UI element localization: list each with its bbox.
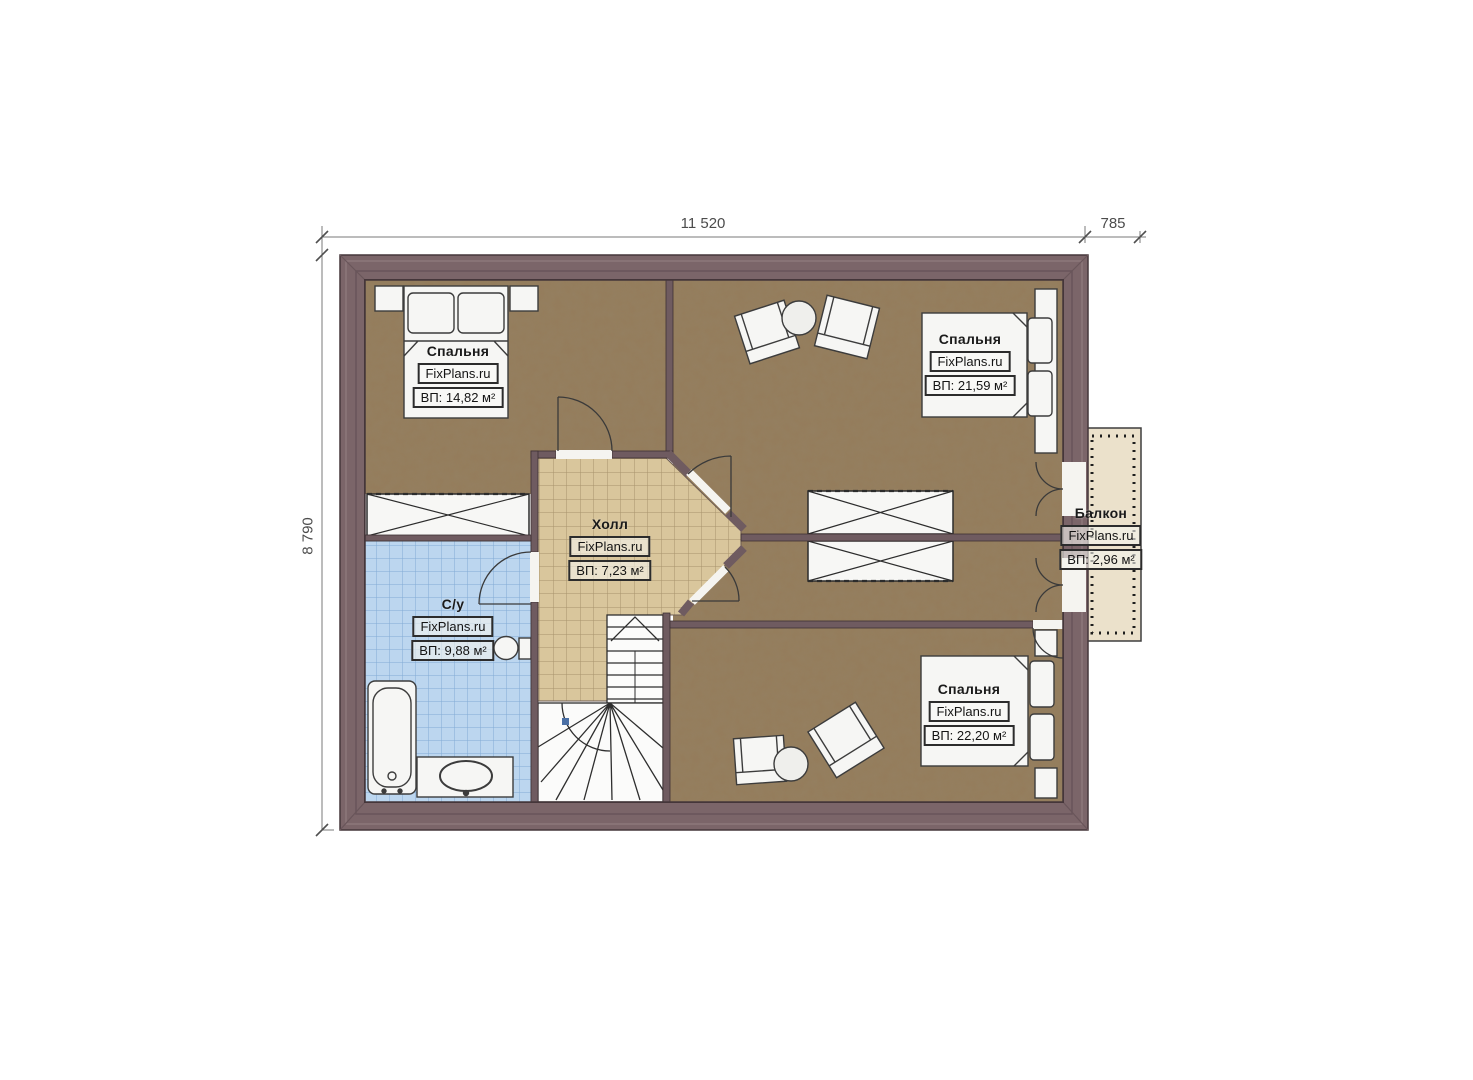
newel-post-marker xyxy=(562,718,569,725)
floorplan-page: 11 520 785 8 790 Спальня FixPlans.ru ВП:… xyxy=(0,0,1473,1080)
floor-plan-canvas xyxy=(0,0,1473,1080)
dim-width-main: 11 520 xyxy=(681,215,726,232)
dim-width-balcony: 785 xyxy=(1100,215,1125,232)
wardrobe-symbol xyxy=(808,541,953,581)
sink-vanity-symbol xyxy=(417,757,513,797)
balcony-structure xyxy=(1085,428,1141,641)
bathtub-symbol xyxy=(368,681,416,794)
dim-height-left: 8 790 xyxy=(300,517,317,555)
coffee-table-symbol xyxy=(782,301,816,335)
coffee-table-symbol xyxy=(774,747,808,781)
wardrobe-symbol xyxy=(367,494,529,536)
bed-symbol xyxy=(404,286,508,418)
toilet-symbol xyxy=(494,637,531,660)
wardrobe-symbol xyxy=(808,491,953,534)
